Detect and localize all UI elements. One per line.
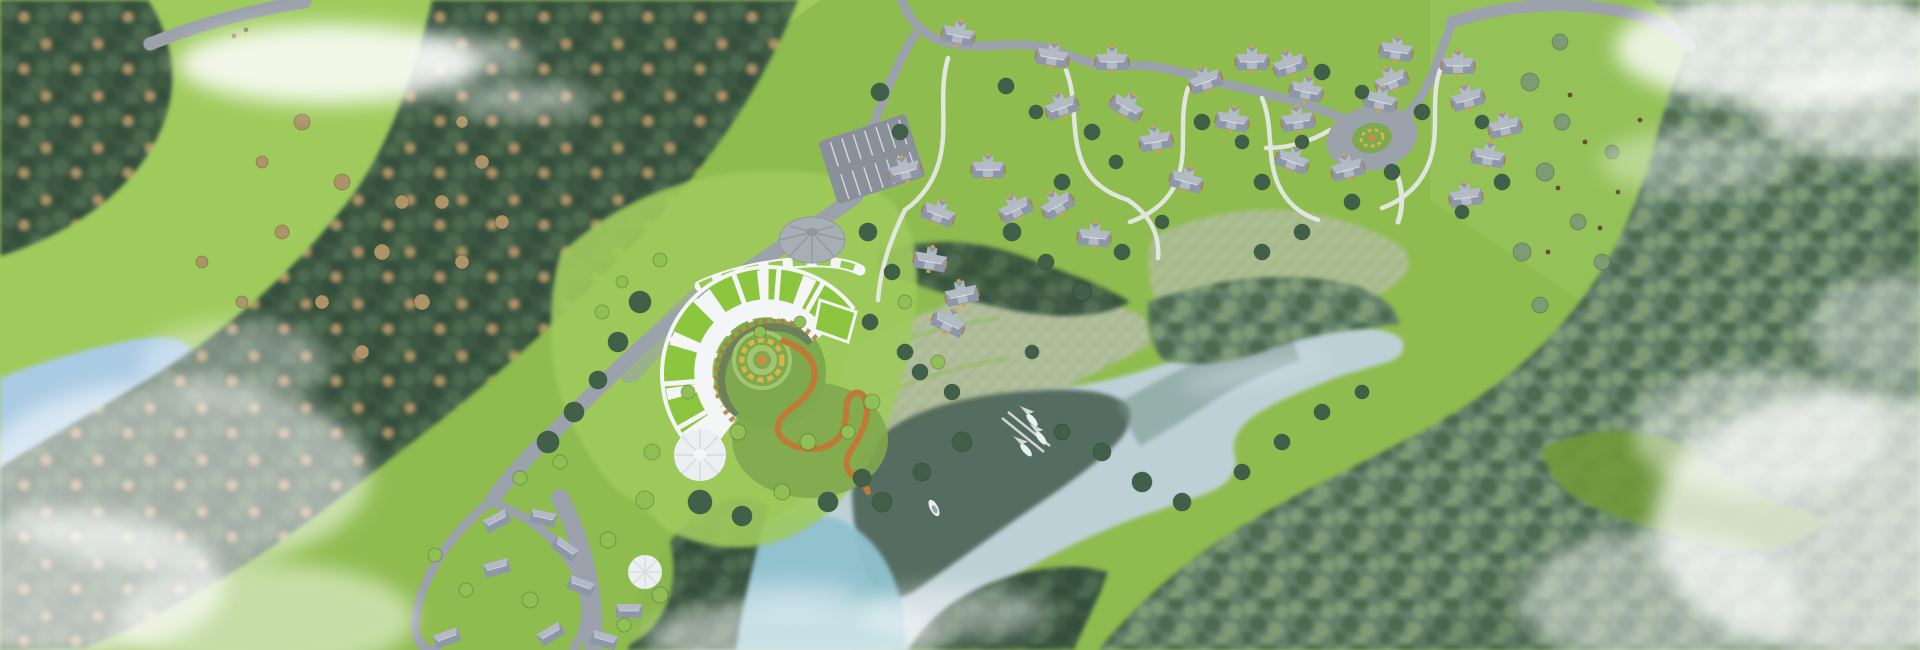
deciduous-tree [931,355,945,369]
conifer-tree [944,384,960,400]
gazebo-ribs [628,555,662,589]
tan-tree [294,114,310,130]
conifer-tree [1355,85,1369,99]
conifer-tree [1132,472,1152,492]
conifer-tree [1314,64,1330,80]
deciduous-tree [636,491,654,509]
aerial-resort-masterplan [0,0,1920,650]
conifer-tree [608,332,628,352]
deciduous-tree [459,583,473,597]
conifer-tree [629,291,651,313]
person-figure [1638,118,1643,123]
tan-tree [395,195,409,209]
conifer-tree [1173,493,1191,511]
pavilion-apex [694,449,706,461]
gray-tree [1521,73,1539,91]
conifer-tree [1194,114,1210,130]
conifer-tree [1475,115,1489,129]
tan-tree [435,195,449,209]
conifer-tree [818,492,838,512]
conifer-tree [892,124,908,140]
deciduous-tree [774,484,790,500]
tan-tree [334,174,350,190]
deciduous-tree [653,253,667,267]
conifer-tree [1295,135,1309,149]
gray-tree [1513,243,1531,261]
deciduous-tree [794,316,806,328]
conifer-tree [897,344,913,360]
tan-tree [456,116,468,128]
gray-tree [1594,254,1610,270]
garden-gazebo [628,555,662,589]
conifer-tree [1344,194,1360,210]
gray-tree [1536,163,1554,181]
conifer-tree [537,431,559,453]
person-figure [1598,226,1603,231]
tan-tree [414,294,430,310]
scene-canvas [0,0,1920,650]
deciduous-tree [800,434,816,450]
conifer-tree [859,223,877,241]
tan-tree [315,295,329,309]
conifer-tree [732,506,752,526]
cloud [860,586,1050,638]
conifer-tree [1025,345,1039,359]
cloud [1633,367,1883,497]
tan-tree [236,296,248,308]
tan-tree [256,156,268,168]
deciduous-tree [616,276,628,288]
conifer-tree [872,492,892,512]
person-figure [1546,250,1551,255]
conifer-tree [1003,223,1021,241]
deciduous-tree [428,548,442,562]
conifer-tree [1234,464,1250,480]
deciduous-tree [617,618,631,632]
cloud [408,38,532,74]
conifer-tree [1054,424,1070,440]
gray-tree [1532,297,1548,313]
deciduous-tree [681,385,695,399]
cottage [616,604,642,618]
tan-tree [355,345,369,359]
conifer-tree [1084,124,1100,140]
person-figure [1568,93,1573,98]
person-figure [1616,190,1621,195]
conifer-tree [564,402,584,422]
parterre-center [757,355,767,365]
conifer-tree [1073,283,1091,301]
conifer-tree [1054,174,1070,190]
deciduous-tree [522,592,538,608]
conifer-tree [1093,443,1111,461]
conifer-tree [1494,174,1510,190]
conifer-tree [871,83,889,101]
deciduous-tree [841,425,855,439]
conifer-tree [688,490,712,514]
deciduous-tree [864,394,880,410]
deciduous-tree [652,587,668,603]
conifer-tree [884,264,900,280]
conifer-tree [1114,244,1130,260]
conifer-tree [1109,155,1123,169]
conifer-tree [1254,174,1270,190]
conifer-tree [1274,434,1290,450]
tan-tree [455,255,469,269]
tan-tree [495,215,509,229]
tan-tree [374,244,390,260]
conifer-tree [1314,404,1330,420]
deciduous-tree [553,455,567,469]
person-figure [1583,140,1588,145]
conifer-tree [853,469,871,487]
conifer-tree [1038,254,1054,270]
conifer-tree [952,432,972,452]
conifer-tree [913,463,931,481]
gray-tree [1554,114,1570,130]
conifer-tree [862,314,878,330]
person-figure [1556,186,1561,191]
deciduous-tree [644,444,660,460]
spa-pavilion [674,429,726,481]
tan-tree [475,155,489,169]
conifer-tree [1294,224,1310,240]
conifer-tree [1414,104,1430,120]
tan-tree [196,256,208,268]
deciduous-tree [754,326,766,338]
cloud [450,83,594,117]
conifer-tree [1155,215,1169,229]
gray-tree [1552,34,1568,50]
dome-apex [806,228,818,236]
conifer-tree [1235,135,1249,149]
conifer-tree [1455,205,1469,219]
deciduous-tree [595,305,609,319]
conifer-tree [1254,244,1270,260]
gray-tree [1570,214,1586,230]
deciduous-tree [898,295,912,309]
conifer-tree [912,364,928,380]
deciduous-tree [730,424,746,440]
conifer-tree [589,371,607,389]
deciduous-tree [600,532,616,548]
conifer-tree [1029,105,1043,119]
tan-tree [275,225,289,239]
conifer-tree [1384,164,1400,180]
dome-hall [779,217,845,263]
cloud [1600,130,1790,194]
conifer-tree [998,78,1014,94]
conifer-tree [1355,385,1369,399]
deciduous-tree [513,471,527,485]
